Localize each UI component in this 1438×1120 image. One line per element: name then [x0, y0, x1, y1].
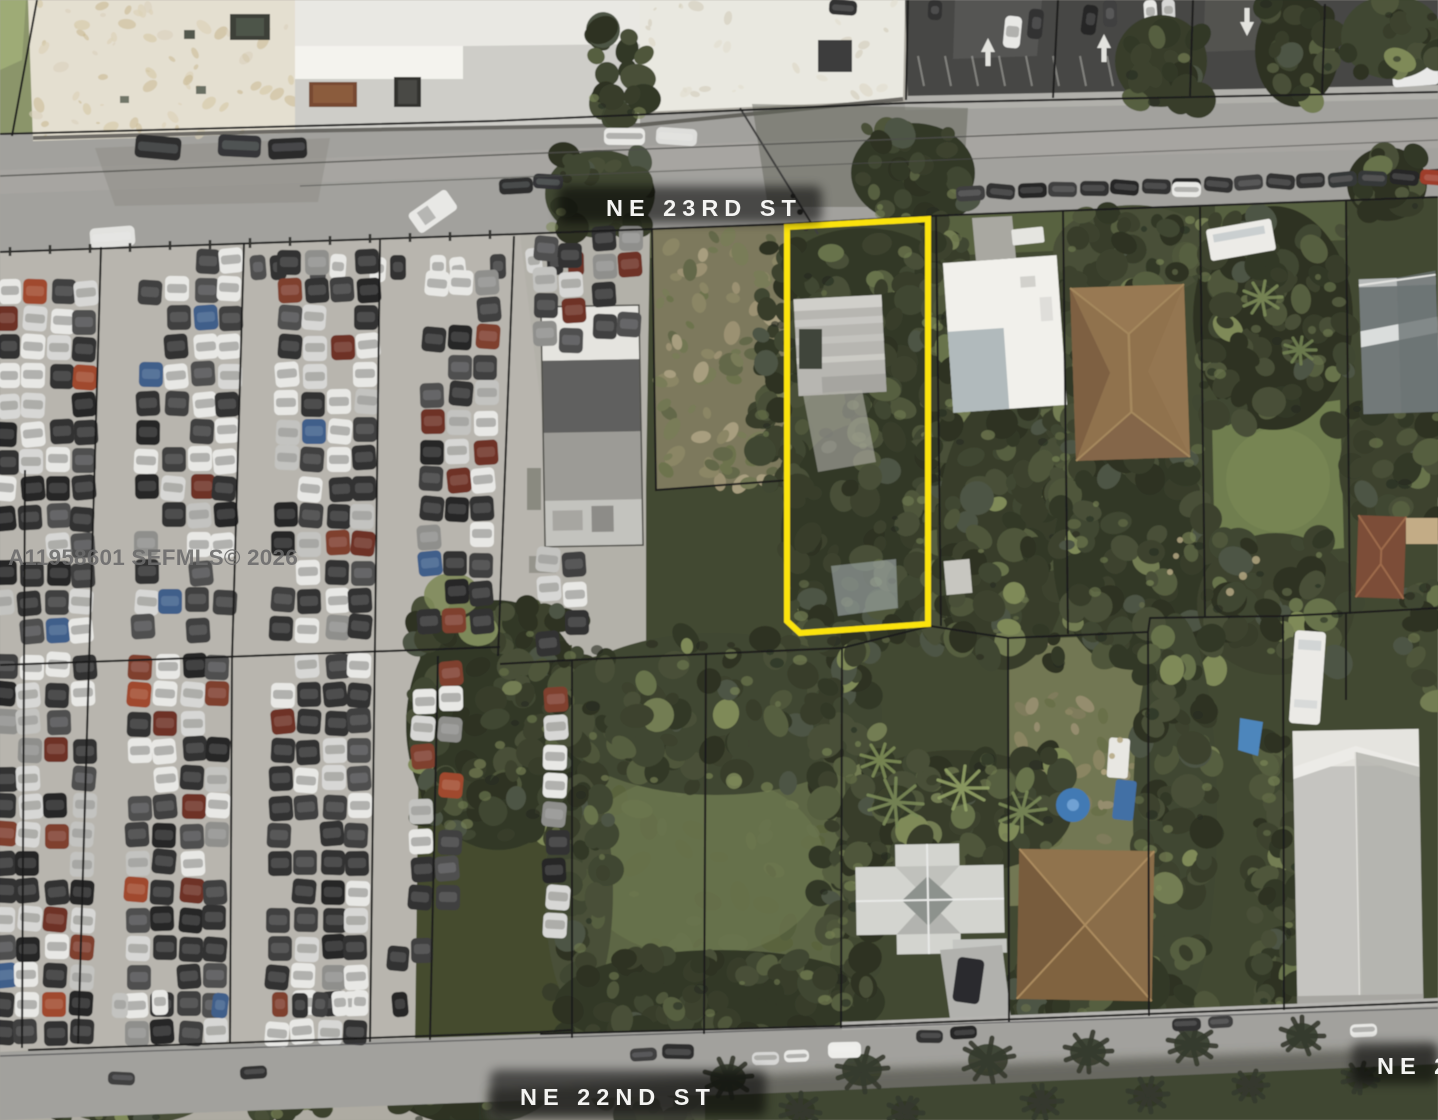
svg-text:NE 22ND ST: NE 22ND ST: [520, 1084, 716, 1110]
svg-text:NE 23RD ST: NE 23RD ST: [606, 195, 802, 221]
svg-text:A11958601 SEFMLS© 2026: A11958601 SEFMLS© 2026: [8, 545, 298, 570]
svg-text:NE 2: NE 2: [1377, 1053, 1438, 1079]
